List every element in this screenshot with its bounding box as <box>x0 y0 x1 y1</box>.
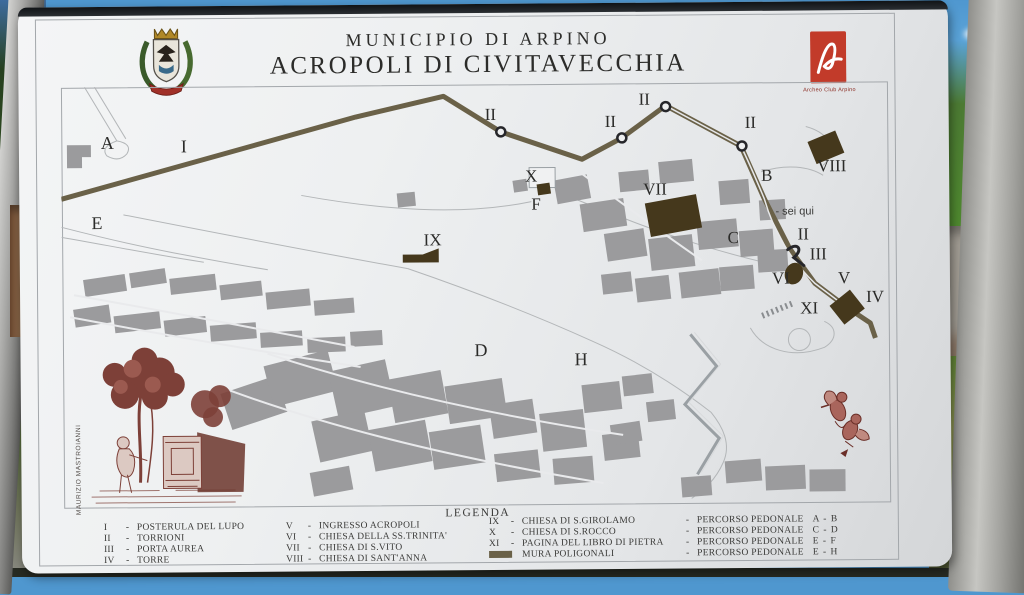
label-chiesa-viii: VIII <box>817 156 847 175</box>
label-chiesa-vi: VI <box>772 269 790 288</box>
engraving-tree <box>102 347 231 428</box>
legend-dash: - <box>126 523 137 534</box>
map-sign-panel: MUNICIPIO DI ARPINO ACROPOLI DI CIVITAVE… <box>18 0 952 573</box>
legend-label: CHIESA DELLA SS.TRINITA' <box>319 531 447 542</box>
legend-numeral: II <box>104 534 126 545</box>
legend-column-4: -PERCORSO PEDONALEA - B -PERCORSO PEDONA… <box>686 514 839 559</box>
legend-label: CHIESA DI S.VITO <box>319 543 403 554</box>
legend-numeral: V <box>286 521 308 532</box>
legend-dash: - <box>686 526 697 537</box>
map-boundary-wall <box>684 332 723 474</box>
label-torre-iv: IV <box>866 287 885 306</box>
mura-poligonali-swatch <box>489 551 512 558</box>
label-torrione-ii: II <box>605 112 617 131</box>
legend-label: MURA POLIGONALI <box>522 549 614 560</box>
legend-dash: - <box>511 517 522 528</box>
legend-column-3: IX-CHIESA DI S.GIROLAMO X-CHIESA DI S.RO… <box>489 516 664 561</box>
legend-dash: - <box>686 537 697 548</box>
legend-route: E - H <box>813 547 839 557</box>
legend-label: TORRE <box>137 555 170 565</box>
label-path-b: B <box>761 166 772 185</box>
cherubs-illustration <box>811 377 876 462</box>
legend-dash: - <box>126 556 137 567</box>
legend-numeral: IX <box>489 517 511 528</box>
legend-dash: - <box>686 548 697 559</box>
legend-route: E - F <box>813 536 837 546</box>
legend-item: MURA POLIGONALI <box>489 549 664 561</box>
label-area-c: C <box>728 228 739 247</box>
photo-of-map-sign: { "sign": { "title_line1": "MUNICIPIO DI… <box>0 0 1024 577</box>
legend-item: VI-CHIESA DELLA SS.TRINITA' <box>286 531 447 543</box>
legend-dash: - <box>686 515 697 526</box>
label-path-i: I <box>181 136 187 156</box>
title-line-2: ACROPOLI DI CIVITAVECCHIA <box>148 47 808 82</box>
legend-label: INGRESSO ACROPOLI <box>319 521 420 532</box>
label-area-a: A <box>101 133 114 153</box>
stairs-hatch <box>762 304 792 316</box>
label-torrione-ii: II <box>745 113 757 132</box>
artist-credit: MAURIZIO MASTROIANNI <box>75 415 83 515</box>
legend-item: -PERCORSO PEDONALEE - H <box>686 547 839 559</box>
label-chiesa-x: X <box>525 167 537 186</box>
engraving-dark-mass <box>197 432 245 492</box>
legend-route: C - D <box>813 525 839 535</box>
legend-label: PERCORSO PEDONALE <box>697 526 804 537</box>
label-area-e: E <box>91 213 102 233</box>
legend: LEGENDA I-POSTERULA DEL LUPO II-TORRIONI… <box>64 503 892 566</box>
legend-dash: - <box>308 532 319 543</box>
legend-item: I-POSTERULA DEL LUPO <box>104 522 245 534</box>
legend-label: CHIESA DI S.GIROLAMO <box>522 516 635 527</box>
sign-title: MUNICIPIO DI ARPINO ACROPOLI DI CIVITAVE… <box>148 25 808 82</box>
label-chiesa-ix: IX <box>424 230 442 249</box>
legend-numeral: VI <box>286 532 308 543</box>
legend-numeral: IV <box>104 556 126 567</box>
legend-dash: - <box>308 521 319 532</box>
legend-numeral: VIII <box>286 554 308 565</box>
legend-numeral: XI <box>489 539 511 550</box>
legend-label: PORTA AUREA <box>137 544 204 555</box>
label-path-f: F <box>531 195 541 214</box>
legend-route: A - B <box>813 514 839 524</box>
legend-label: TORRIONI <box>137 533 185 543</box>
label-torrione-ii: II <box>798 224 810 243</box>
legend-dash: - <box>308 554 319 565</box>
label-chiesa-vii: VII <box>643 180 667 199</box>
label-area-d: D <box>474 340 487 360</box>
legend-column-2: V-INGRESSO ACROPOLI VI-CHIESA DELLA SS.T… <box>286 520 448 565</box>
label-area-h: H <box>574 349 587 369</box>
label-pagina-xi: XI <box>800 298 818 317</box>
legend-item: VIII-CHIESA DI SANT'ANNA <box>286 553 447 565</box>
archeo-club-logo <box>810 31 846 83</box>
label-porta-iii: III <box>810 244 827 263</box>
antique-engraving <box>84 344 250 513</box>
legend-dash: - <box>511 539 522 550</box>
legend-label: PAGINA DEL LIBRO DI PIETRA <box>522 538 664 549</box>
legend-column-1: I-POSTERULA DEL LUPO II-TORRIONI III-POR… <box>104 522 245 567</box>
legend-item: IV-TORRE <box>104 555 245 567</box>
label-torrione-ii: II <box>485 105 497 124</box>
legend-label: CHIESA DI SANT'ANNA <box>319 553 427 564</box>
engraving-cherub <box>117 437 148 493</box>
legend-numeral: I <box>104 523 126 534</box>
legend-label: PERCORSO PEDONALE <box>697 548 804 559</box>
church-markers <box>402 130 865 328</box>
garden-circle <box>788 328 810 350</box>
legend-label: PERCORSO PEDONALE <box>697 537 804 548</box>
legend-numeral: X <box>489 528 511 539</box>
legend-dash: - <box>126 545 137 556</box>
legend-item: XI-PAGINA DEL LIBRO DI PIETRA <box>489 538 664 550</box>
legend-numeral: VII <box>286 543 308 554</box>
label-sei-qui: - sei qui <box>775 205 814 217</box>
legend-dash: - <box>126 534 137 545</box>
label-torrione-ii: II <box>638 90 650 109</box>
label-ingresso-v: V <box>838 268 851 287</box>
legend-dash: - <box>308 543 319 554</box>
legend-numeral: III <box>104 545 126 556</box>
legend-label: PERCORSO PEDONALE <box>697 515 804 526</box>
legend-label: CHIESA DI S.ROCCO <box>522 527 616 538</box>
legend-dash: - <box>511 528 522 539</box>
legend-label: POSTERULA DEL LUPO <box>137 522 245 533</box>
